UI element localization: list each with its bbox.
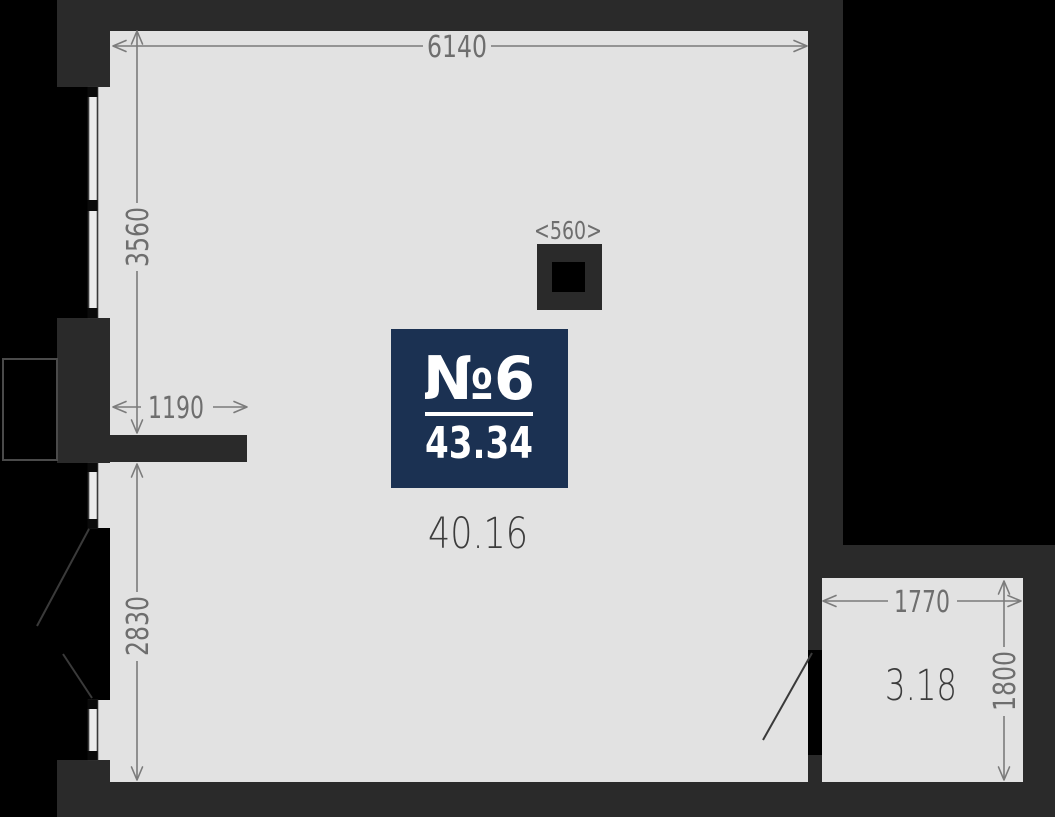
small-room-area-label: 3.18 (885, 661, 957, 711)
balcony-door-opening-upper (57, 463, 88, 528)
exterior-shaft (3, 359, 57, 460)
dim-left-stub-width-label: 1190 (148, 391, 204, 426)
door-node (88, 463, 98, 472)
window-opening (57, 87, 88, 318)
column-inner (552, 262, 585, 292)
wall-left-bottom-corner (57, 760, 110, 817)
wall-right (808, 0, 843, 545)
wall-small-room-right (1023, 578, 1055, 782)
unit-total-area: 43.34 (425, 418, 533, 469)
wall-small-room-top (808, 545, 1055, 578)
dim-column-width-label: <560> (534, 216, 602, 245)
wall-top (57, 0, 843, 31)
wall-left-top-corner (57, 31, 110, 87)
window-node (88, 308, 98, 318)
unit-number: №6 (423, 344, 535, 414)
balcony-door-frame-lower (89, 701, 98, 760)
wall-left-middle (57, 318, 110, 463)
door-recess-lower (98, 700, 110, 760)
dim-left-lower-height-label: 2830 (121, 596, 156, 656)
floor-plan: 6140 3560 1190 2830 <560> 1770 (0, 0, 1055, 817)
balcony-door-opening-lower (57, 700, 88, 760)
balcony-door-frame-upper (89, 464, 98, 528)
window-recess (98, 87, 110, 318)
dim-small-room-height-label: 1800 (988, 651, 1023, 711)
dim-small-room-width-label: 1770 (894, 585, 950, 620)
dim-top-width-label: 6140 (427, 30, 487, 65)
wall-small-room-left-upper (808, 578, 822, 650)
door-node (88, 700, 98, 709)
balcony-door-opening-middle (57, 528, 110, 700)
wall-small-room-left-lower (808, 755, 822, 782)
unit-badge[interactable]: №6 43.34 (391, 329, 568, 488)
door-node (88, 519, 98, 528)
door-node (88, 751, 98, 760)
window-node (88, 200, 98, 211)
wall-interior-stub (110, 435, 247, 462)
door-recess-upper (98, 463, 110, 529)
window (57, 87, 98, 318)
floor-plan-svg: 6140 3560 1190 2830 <560> 1770 (0, 0, 1055, 817)
window-node (88, 87, 98, 97)
wall-bottom (110, 782, 1055, 817)
dim-left-upper-height-label: 3560 (121, 207, 156, 267)
main-room-area-label: 40.16 (428, 509, 528, 559)
structural-column (537, 244, 602, 310)
